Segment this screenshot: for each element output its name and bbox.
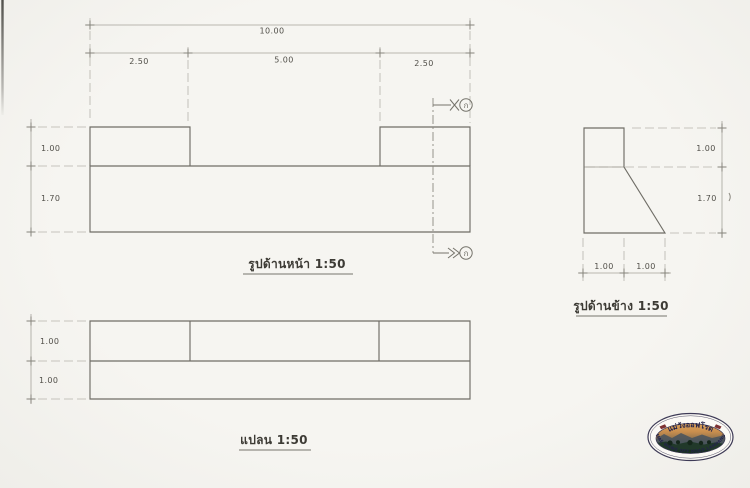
side-outline [584, 128, 665, 233]
section-letter: ก [464, 101, 469, 110]
extension-lines [38, 321, 86, 399]
dim-width-right: 1.00 [636, 262, 655, 271]
dimension-lines [31, 25, 474, 236]
stray-pen-mark [729, 193, 730, 201]
plan-outline [90, 321, 470, 399]
section-marker-bottom: ก [433, 247, 472, 259]
dim-row-bottom: 1.00 [39, 376, 58, 385]
dim-overall-width: 10.00 [260, 27, 285, 36]
dim-height-top: 1.00 [41, 144, 60, 153]
section-marker-top: ก [433, 99, 472, 111]
front-right-block [380, 127, 470, 166]
drawing-canvas: 10.00 2.50 5.00 2.50 1.00 1.70 ก ก รูปด้… [0, 0, 750, 488]
dim-height-top: 1.00 [696, 144, 715, 153]
dim-height-bottom: 1.70 [697, 194, 716, 203]
extension-lines [38, 127, 86, 232]
front-left-block [90, 127, 190, 166]
front-elevation-title: รูปด้านหน้า 1:50 [248, 257, 346, 272]
dim-height-bottom: 1.70 [41, 194, 60, 203]
dim-segment-mid: 5.00 [274, 56, 293, 65]
side-elevation-view: 1.00 1.70 1.00 1.00 รูปด้านข้าง 1:50 [573, 121, 730, 316]
section-letter: ก [464, 249, 469, 258]
section-arrow-icon [450, 100, 459, 111]
plan-dividers [190, 321, 379, 361]
plan-title: แปลน 1:50 [240, 433, 308, 447]
dim-width-left: 1.00 [594, 262, 613, 271]
front-base-band [90, 166, 470, 232]
section-arrow-icon [448, 248, 460, 258]
dim-segment-right: 2.50 [414, 59, 433, 68]
dim-segment-left: 2.50 [129, 57, 148, 66]
scanned-drawing-sheet: 10.00 2.50 5.00 2.50 1.00 1.70 ก ก รูปด้… [0, 0, 750, 488]
plan-view: 1.00 1.00 แปลน 1:50 [27, 314, 471, 450]
logo-badge: แม่วังออฟโรด MAE WANG OFF ROAD LAMPANG [648, 414, 733, 461]
front-elevation-view: 10.00 2.50 5.00 2.50 1.00 1.70 ก ก รูปด้… [27, 18, 475, 274]
dim-row-top: 1.00 [40, 337, 59, 346]
side-elevation-title: รูปด้านข้าง 1:50 [573, 299, 669, 314]
